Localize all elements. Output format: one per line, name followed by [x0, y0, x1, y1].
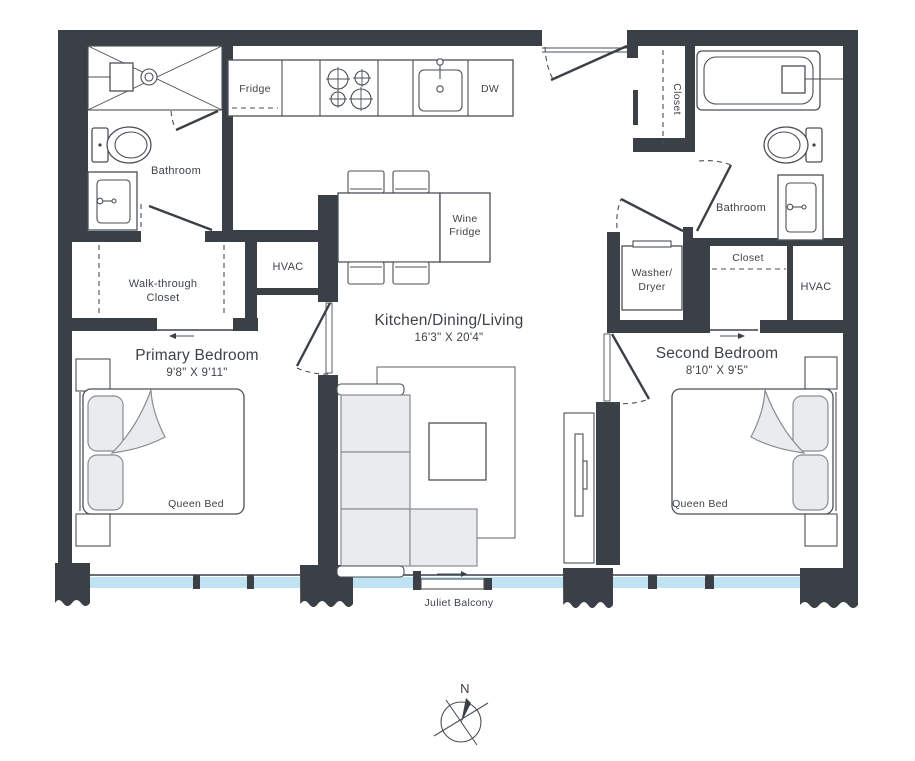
- floorplan-page: Bathroom Fridge DW Wine Fridge: [0, 0, 915, 761]
- window-mullion: [193, 575, 200, 589]
- primary-bedroom-dims: 9'8" X 9'11": [166, 367, 227, 379]
- arrow-right-icon: [461, 571, 467, 577]
- pillow: [88, 455, 123, 510]
- window-mullion: [247, 575, 254, 589]
- second-bedroom-door: [604, 334, 649, 404]
- nightstand: [76, 359, 110, 391]
- wall-pier: [563, 568, 613, 608]
- bathroom-right-door: [697, 165, 731, 231]
- bedroom2-closet: Closet: [712, 252, 786, 269]
- chair: [393, 262, 429, 284]
- vanity-sink: [778, 175, 823, 240]
- compass-north-label: N: [460, 681, 470, 696]
- vanity-sink: [88, 172, 137, 230]
- sofa-chaise: [410, 509, 477, 566]
- fridge-label: Fridge: [239, 83, 271, 95]
- wall-pier: [55, 563, 90, 606]
- laundry-door: [621, 199, 683, 231]
- window-mullion: [705, 575, 714, 589]
- primary-bedroom-title: Primary Bedroom: [135, 347, 259, 364]
- primary-bed-label: Queen Bed: [168, 498, 224, 510]
- nightstand: [76, 514, 110, 546]
- pillow: [88, 396, 123, 451]
- kitchen: Fridge DW: [228, 59, 513, 116]
- living-area: Kitchen/Dining/Living 16'3" X 20'4": [337, 312, 594, 577]
- dishwasher-label: DW: [481, 83, 499, 95]
- toilet: [92, 127, 151, 163]
- nightstand: [805, 514, 837, 546]
- bed-queen-primary: Queen Bed: [80, 389, 244, 514]
- bathroom-right: Bathroom: [697, 51, 843, 240]
- chair: [348, 262, 384, 284]
- window-band: [90, 571, 800, 590]
- bedroom2-closet-label: Closet: [732, 252, 764, 264]
- second-bedroom-dims: 8'10" X 9'5": [686, 365, 748, 377]
- entry-closet-label: Closet: [671, 83, 683, 115]
- bathroom-right-label: Bathroom: [716, 202, 766, 214]
- pillow: [793, 455, 828, 510]
- walk-through-closet: Walk-through Closet: [99, 245, 224, 314]
- bathroom-left: Bathroom: [88, 46, 222, 230]
- arrow-left-icon: [169, 333, 176, 339]
- walk-through-label-2: Closet: [147, 292, 180, 304]
- kitchen-living-title: Kitchen/Dining/Living: [375, 312, 524, 329]
- wall-pier: [800, 568, 858, 608]
- toilet: [764, 127, 822, 163]
- arrow-right-icon: [738, 333, 745, 339]
- floorplan-drawing: Bathroom Fridge DW Wine Fridge: [0, 0, 915, 761]
- pillow: [793, 396, 828, 451]
- coffee-table: [429, 423, 486, 480]
- entry: Closet: [542, 46, 683, 148]
- laundry-closet: Washer/ Dryer: [617, 199, 683, 310]
- primary-bedroom-door: [297, 303, 332, 374]
- hvac-left-label: HVAC: [273, 261, 304, 273]
- tv: [575, 434, 583, 516]
- chair: [393, 171, 429, 193]
- chair: [348, 171, 384, 193]
- second-bedroom-title: Second Bedroom: [656, 345, 779, 362]
- dining-area: Wine Fridge: [338, 171, 490, 284]
- shower-door: [176, 111, 218, 130]
- balcony-sliding-door: [413, 571, 492, 590]
- bed-queen-second: Queen Bed: [672, 389, 836, 514]
- walk-through-label-1: Walk-through: [129, 278, 198, 290]
- hvac-right-label: HVAC: [801, 281, 832, 293]
- entry-door: [551, 46, 627, 80]
- window-mullion: [648, 575, 657, 589]
- kitchen-living-dims: 16'3" X 20'4": [415, 332, 484, 344]
- bathroom-left-door: [149, 206, 212, 230]
- balcony-label: Juliet Balcony: [425, 597, 494, 609]
- bathroom-left-label: Bathroom: [151, 165, 201, 177]
- nightstand: [805, 357, 837, 389]
- entry-closet: Closet: [663, 50, 683, 148]
- wine-fridge-label-1: Wine: [452, 213, 477, 225]
- wine-fridge-label-2: Fridge: [449, 226, 481, 238]
- washer-label-2: Dryer: [638, 281, 665, 293]
- shower-head: [110, 63, 133, 91]
- dining-table: [338, 193, 440, 262]
- second-bed-label: Queen Bed: [672, 498, 728, 510]
- washer-label-1: Washer/: [632, 267, 673, 279]
- compass: N: [434, 681, 488, 745]
- bathtub: [697, 51, 843, 110]
- primary-bedroom: Primary Bedroom 9'8" X 9'11" Queen Bed: [76, 303, 332, 546]
- second-bedroom: Second Bedroom 8'10" X 9'5" Queen Bed: [604, 330, 837, 546]
